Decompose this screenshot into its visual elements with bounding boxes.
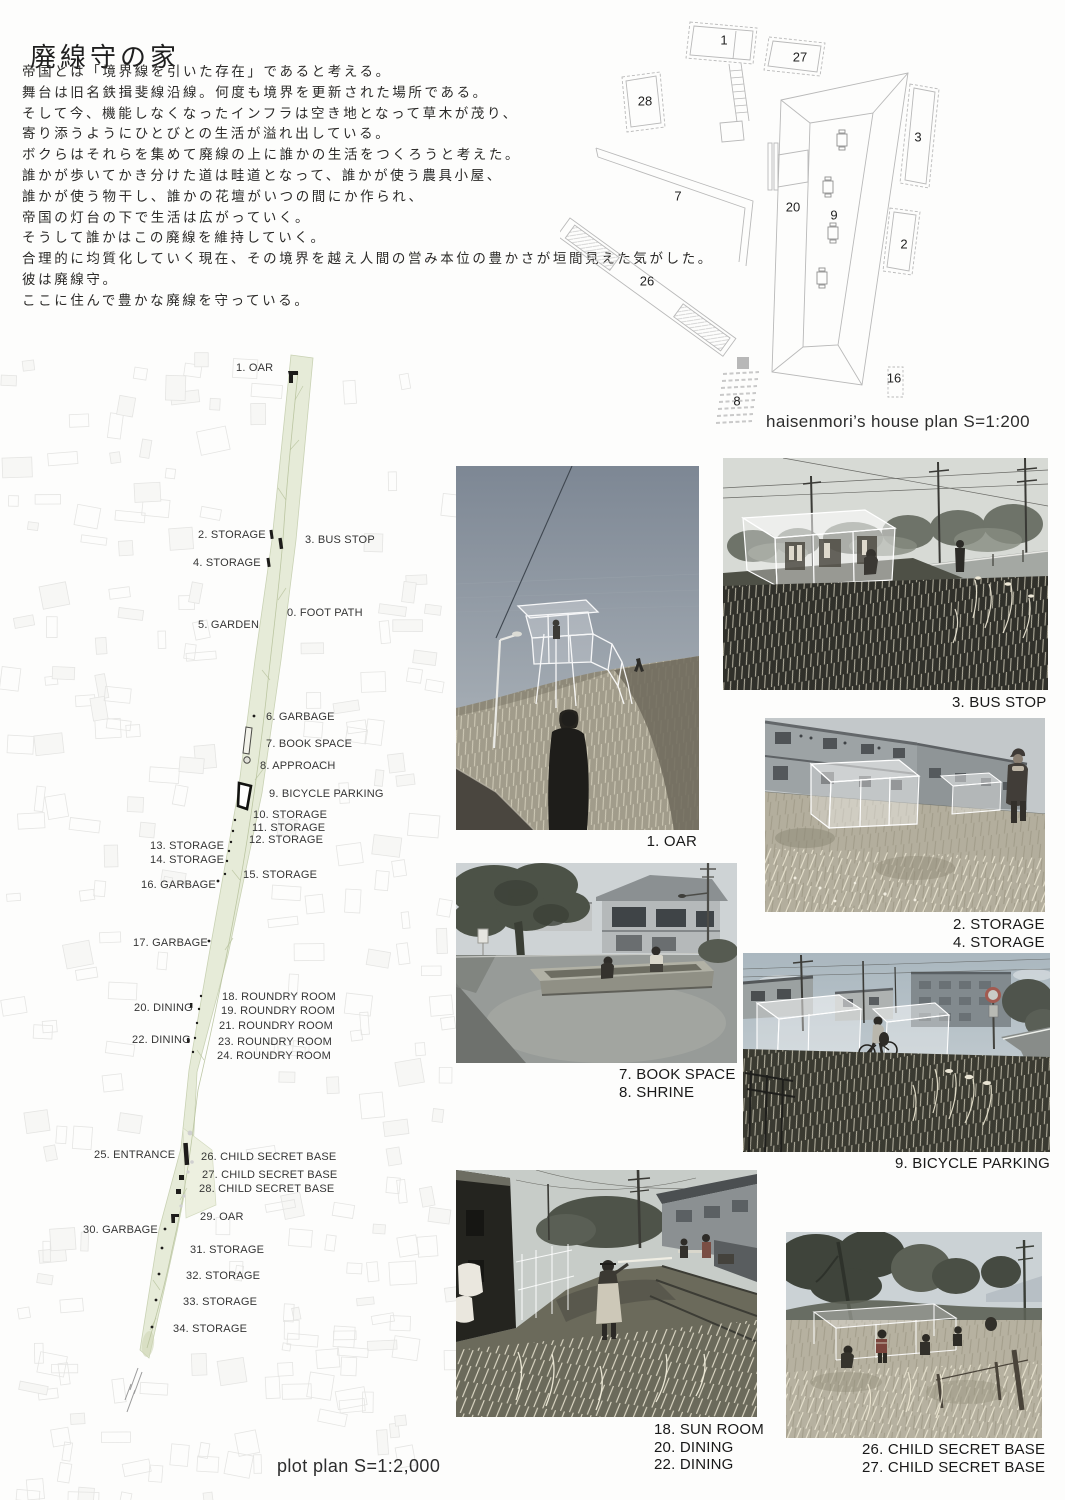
plot-label: 7. BOOK SPACE (266, 739, 352, 750)
plot-label: 28. CHILD SECRET BASE (199, 1184, 334, 1195)
plot-label: 13. STORAGE (150, 841, 224, 852)
photo-caption-line: 18. SUN ROOM (654, 1421, 764, 1439)
house-plan-number: 20 (786, 201, 800, 214)
photo-bicycle-parking-caption: 9. BICYCLE PARKING (895, 1155, 1050, 1173)
storage-shed-wireframe (811, 760, 919, 828)
house-plan-number: 27 (793, 51, 807, 64)
plot-label: 30. GARBAGE (83, 1225, 158, 1236)
photo-bicycle-parking-image (743, 953, 1050, 1152)
photo-book-space-caption: 7. BOOK SPACE8. SHRINE (619, 1066, 736, 1101)
house-plan-number: 2 (900, 238, 907, 251)
house-plan-number: 9 (830, 209, 837, 222)
house-plan-number: 7 (674, 190, 681, 203)
photo-oar-image (456, 466, 699, 830)
house-plan-number: 26 (640, 275, 654, 288)
photo-oar-caption: 1. OAR (647, 833, 697, 851)
house-plan-number: 1 (720, 34, 727, 47)
plot-label: 21. ROUNDRY ROOM (219, 1021, 333, 1032)
plot-label: 6. GARBAGE (266, 712, 335, 723)
photo-sun-room-caption: 18. SUN ROOM20. DINING22. DINING (654, 1421, 764, 1474)
photo-caption-line: 20. DINING (654, 1439, 764, 1457)
photo-caption-line: 3. BUS STOP (952, 694, 1046, 712)
photo-bus-stop: 3. BUS STOP (723, 458, 1048, 690)
plot-label: 24. ROUNDRY ROOM (217, 1051, 331, 1062)
house-plan-caption: haisenmori’s house plan S=1:200 (766, 412, 1030, 432)
photo-caption-line: 27. CHILD SECRET BASE (862, 1459, 1045, 1477)
photo-storage-caption: 2. STORAGE4. STORAGE (953, 916, 1045, 951)
plot-label: 33. STORAGE (183, 1297, 257, 1308)
plot-label: 16. GARBAGE (141, 880, 216, 891)
plot-label: 19. ROUNDRY ROOM (221, 1006, 335, 1017)
photo-caption-line: 9. BICYCLE PARKING (895, 1155, 1050, 1173)
photo-caption-line: 2. STORAGE (953, 916, 1045, 934)
plot-label: 17. GARBAGE (133, 938, 208, 949)
photo-child-secret-base-caption: 26. CHILD SECRET BASE27. CHILD SECRET BA… (862, 1441, 1045, 1476)
plot-label: 26. CHILD SECRET BASE (201, 1152, 336, 1163)
house-plan-drawing (560, 0, 1065, 440)
plot-label: 8. APPROACH (260, 761, 336, 772)
plot-label: 14. STORAGE (150, 855, 224, 866)
plot-label: 3. BUS STOP (305, 535, 375, 546)
photo-sun-room: 18. SUN ROOM20. DINING22. DINING (456, 1170, 757, 1417)
plot-label: 9. BICYCLE PARKING (269, 789, 384, 800)
plot-label: 31. STORAGE (190, 1245, 264, 1256)
house-plan-number: 3 (914, 131, 921, 144)
photo-storage-image (765, 718, 1045, 912)
house-plan-number: 16 (887, 372, 901, 385)
photo-caption-line: 26. CHILD SECRET BASE (862, 1441, 1045, 1459)
photo-storage: 2. STORAGE4. STORAGE (765, 718, 1045, 912)
plot-label: 22. DINING (132, 1035, 191, 1046)
house-plan-number: 28 (638, 95, 652, 108)
photo-book-space-image (456, 863, 737, 1063)
photo-bicycle-parking: 9. BICYCLE PARKING (743, 953, 1050, 1152)
photo-bus-stop-image (723, 458, 1048, 690)
plot-label: 5. GARDEN (198, 620, 259, 631)
photo-caption-line: 8. SHRINE (619, 1084, 736, 1102)
photo-bus-stop-caption: 3. BUS STOP (952, 694, 1046, 712)
photo-book-space: 7. BOOK SPACE8. SHRINE (456, 863, 737, 1063)
plot-label: 20. DINING (134, 1003, 193, 1014)
photo-caption-line: 22. DINING (654, 1456, 764, 1474)
presentation-board: 廃線守の家 帝国とは「境界線を引いた存在」であると考える。舞台は旧名鉄揖斐線沿線… (0, 0, 1065, 1500)
plot-label: 29. OAR (200, 1212, 244, 1223)
plot-plan-caption: plot plan S=1:2,000 (277, 1456, 440, 1477)
plot-label: 18. ROUNDRY ROOM (222, 992, 336, 1003)
plot-label: 34. STORAGE (173, 1324, 247, 1335)
photo-child-secret-base-image (786, 1232, 1042, 1438)
plot-label: 10. STORAGE (253, 810, 327, 821)
photo-caption-line: 1. OAR (647, 833, 697, 851)
photo-oar: 1. OAR (456, 466, 699, 830)
photo-caption-line: 7. BOOK SPACE (619, 1066, 736, 1084)
plot-label: 1. OAR (236, 363, 273, 374)
plot-label: 15. STORAGE (243, 870, 317, 881)
plot-label: 0. FOOT PATH (287, 608, 363, 619)
plot-label: 32. STORAGE (186, 1271, 260, 1282)
plot-label: 23. ROUNDRY ROOM (218, 1037, 332, 1048)
plot-label: 11. STORAGE (252, 823, 325, 834)
photo-sun-room-image (456, 1170, 757, 1417)
house-plan-number: 8 (733, 395, 740, 408)
plot-label: 27. CHILD SECRET BASE (202, 1170, 337, 1181)
plot-label: 4. STORAGE (193, 558, 261, 569)
photo-child-secret-base: 26. CHILD SECRET BASE27. CHILD SECRET BA… (786, 1232, 1042, 1438)
photo-caption-line: 4. STORAGE (953, 934, 1045, 952)
plot-label: 2. STORAGE (198, 530, 266, 541)
plot-label: 12. STORAGE (249, 835, 323, 846)
plot-label: 25. ENTRANCE (94, 1150, 175, 1161)
